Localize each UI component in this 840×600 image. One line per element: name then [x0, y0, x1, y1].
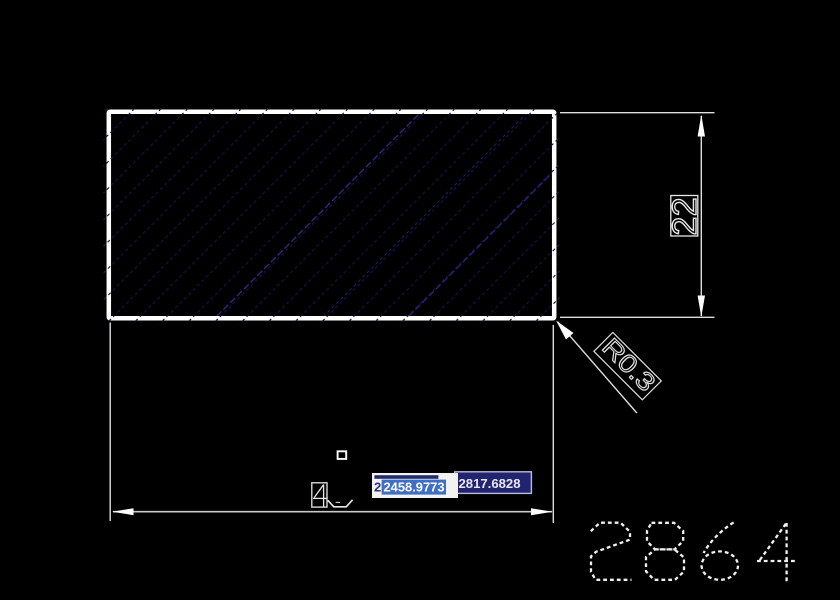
svg-text:2: 2	[374, 479, 381, 494]
svg-text:22: 22	[666, 197, 704, 235]
svg-text:2458.9773: 2458.9773	[384, 480, 445, 495]
svg-text:2817.6828: 2817.6828	[459, 476, 521, 491]
